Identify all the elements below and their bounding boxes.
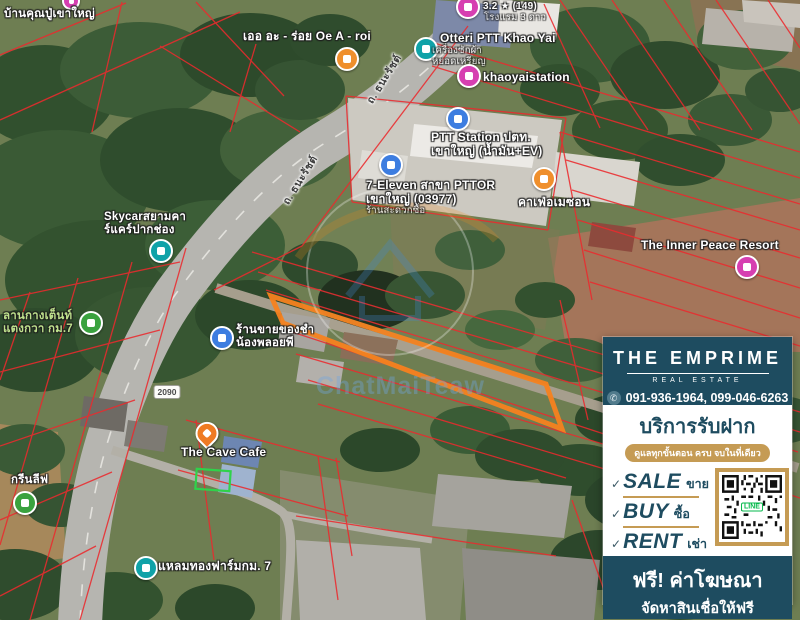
ad-card-body: บริการรับฝาก ดูแลทุกขั้นตอน ครบ จบในที่เ…: [603, 405, 792, 556]
poi-ptt-label: PTT Station ปตท. เขาใหญ่ (น้ำมัน+EV): [431, 131, 542, 159]
restaurant-marker-icon[interactable]: [335, 47, 359, 71]
poi-cafe-amazon-label: คาเฟ่อเมซอน: [518, 196, 590, 210]
phone-icon: ✆: [607, 391, 621, 405]
service-item-buy: ✓ BUY ซื้อ: [611, 500, 709, 524]
check-icon: ✓: [611, 537, 621, 551]
service-title: บริการรับฝาก: [609, 410, 786, 442]
green-leaf-marker-icon[interactable]: [13, 491, 37, 515]
line-badge: LINE: [741, 503, 763, 512]
service-subtitle-pill: ดูแลทุกขั้นตอน ครบ จบในที่เดียว: [625, 444, 770, 462]
service-buy-th: ซื้อ: [674, 504, 690, 524]
farm-marker-icon[interactable]: [134, 556, 158, 580]
hotel-rating-label: 3.2 ★ (149): [483, 1, 537, 13]
cafe-marker-icon[interactable]: [532, 167, 556, 191]
ad-card-footer: ฟรี! ค่าโฆษณา จัดหาสินเชื่อให้ฟรี: [603, 556, 792, 619]
gold-divider: [623, 496, 699, 498]
service-rent-en: RENT: [623, 530, 682, 554]
grocery-marker-icon[interactable]: [210, 326, 234, 350]
poi-grocery-label: ร้านขายของชำ น้องพลอยพี: [236, 324, 314, 350]
gold-divider: [623, 526, 699, 528]
line-qr-code: LINE: [715, 468, 789, 546]
service-sale-th: ขาย: [686, 474, 709, 494]
lodging-marker-icon[interactable]: [457, 64, 481, 88]
ad-card: THE EMPRIME REAL ESTATE ✆ 091-936-1964, …: [603, 337, 792, 604]
poi-seven-eleven-label: 7-Eleven สาขา PTTOR เขาใหญ่ (03977): [366, 179, 495, 207]
poi-khaoyaistation-label: khaoyaistation: [483, 71, 570, 85]
poi-green-leaf-label: กรีนลีฟ: [11, 474, 48, 487]
service-item-sale: ✓ SALE ขาย: [611, 470, 709, 494]
poi-baan-khun-pu-label: บ้านคุณปู่เขาใหญ่: [4, 8, 95, 21]
brand-name: THE EMPRIME: [603, 348, 792, 369]
convenience-store-marker-icon[interactable]: [379, 153, 403, 177]
resort-marker-icon[interactable]: [735, 255, 759, 279]
satellite-map: บ้านคุณปู่เขาใหญ่ 3.2 ★ (149) โรงแรม 3 ด…: [0, 0, 800, 620]
service-list: ✓ SALE ขาย ✓ BUY ซื้อ ✓ RENT เช่า: [611, 468, 709, 554]
ad-card-header: THE EMPRIME REAL ESTATE ✆ 091-936-1964, …: [603, 337, 792, 405]
car-care-marker-icon[interactable]: [149, 239, 173, 263]
phone-row: ✆ 091-936-1964, 099-046-6263: [603, 391, 792, 405]
poi-otteri-label: Otteri PTT Khao Yai: [440, 32, 556, 46]
poi-otteri-sub: เครื่องซักผ้า หยอดเหรียญ: [432, 46, 486, 68]
poi-laemthong-label: แหลมทองฟาร์มกม. 7: [158, 560, 271, 574]
poi-seven-eleven-sub: ร้านสะดวกซื้อ: [366, 206, 425, 217]
service-item-rent: ✓ RENT เช่า: [611, 530, 709, 554]
route-number-badge: 2090: [154, 385, 181, 399]
gas-station-marker-icon[interactable]: [446, 107, 470, 131]
poi-camping-label: ลานกางเต็นท์ แตงกวา กม.7: [3, 310, 73, 336]
brand-subtitle: REAL ESTATE: [603, 377, 792, 384]
check-icon: ✓: [611, 477, 621, 491]
poi-cave-cafe-label: The Cave Cafe: [181, 446, 266, 460]
footer-line1: ฟรี! ค่าโฆษณา: [603, 564, 792, 596]
service-rent-th: เช่า: [687, 534, 707, 554]
service-buy-en: BUY: [623, 500, 669, 524]
poi-inner-peace-label: The Inner Peace Resort: [641, 239, 779, 253]
footer-line2: จัดหาสินเชื่อให้ฟรี: [603, 597, 792, 620]
poi-oe-a-roi-label: เออ อะ - ร่อย Oe A - roi: [243, 30, 371, 44]
check-icon: ✓: [611, 507, 621, 521]
phone-numbers: 091-936-1964, 099-046-6263: [626, 391, 789, 405]
watermark-text: ChatMaiTeaw: [316, 372, 485, 401]
hotel-rating-sub: โรงแรม 3 ดาว: [484, 13, 546, 24]
poi-skycar-label: Skycarสยามคา ร์แคร์ปากช่อง: [104, 211, 186, 237]
service-sale-en: SALE: [623, 470, 681, 494]
brand-divider: [627, 373, 769, 374]
campground-marker-icon[interactable]: [79, 311, 103, 335]
